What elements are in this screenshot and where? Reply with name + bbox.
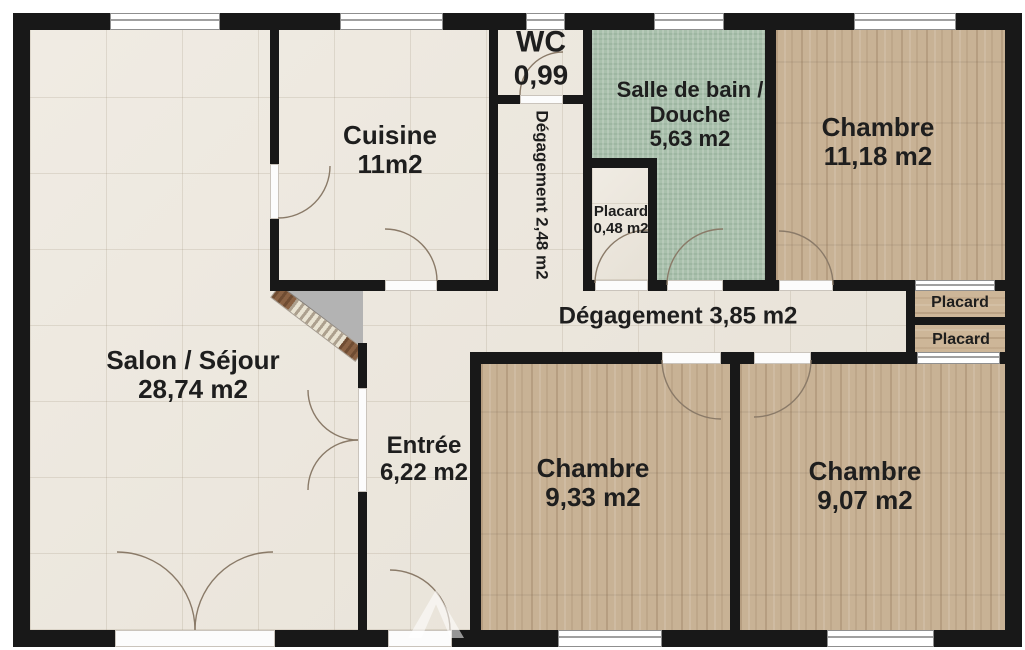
door-arc-sdb <box>667 229 723 285</box>
degagement-couloir-text: Dégagement 2,48 m2 <box>532 110 551 279</box>
door-arc-french-left <box>117 552 195 630</box>
salon-area: 28,74 m2 <box>106 375 279 404</box>
sdb-name-line1: Salle de bain / <box>617 78 764 103</box>
degagement-hall-text: Dégagement 3,85 m2 <box>559 304 798 331</box>
door-arc-chambre3 <box>754 360 811 417</box>
door-arc-cuisine-hall <box>385 229 437 281</box>
placard-haut-name: Placard <box>931 294 989 312</box>
chambre3-area: 9,07 m2 <box>809 486 922 515</box>
chambre1-area: 11,18 m2 <box>822 142 935 171</box>
entree-name: Entrée <box>380 433 468 460</box>
placard-sdb-area: 0,48 m2 <box>593 221 648 238</box>
label-placard-bas: Placard <box>932 331 990 349</box>
label-salle-de-bain: Salle de bain / Douche 5,63 m2 <box>617 78 764 152</box>
label-wc: WC 0,99 <box>514 26 569 91</box>
door-arc-placard-sdb <box>595 230 648 283</box>
sdb-area: 5,63 m2 <box>617 127 764 152</box>
placard-sdb-name: Placard <box>593 204 648 221</box>
chambre3-name: Chambre <box>809 457 922 486</box>
label-degagement-hall: Dégagement 3,85 m2 <box>559 304 798 331</box>
chambre2-name: Chambre <box>537 454 650 483</box>
label-entree: Entrée 6,22 m2 <box>380 433 468 487</box>
label-chambre-1: Chambre 11,18 m2 <box>822 113 935 171</box>
wc-area: 0,99 <box>514 59 569 90</box>
door-arc-chambre1 <box>779 231 833 285</box>
door-arc-chambre2 <box>662 360 721 419</box>
door-arc-entree-bottom <box>308 440 358 490</box>
label-degagement-couloir: Dégagement 2,48 m2 <box>532 110 551 279</box>
label-placard-sdb: Placard 0,48 m2 <box>593 204 648 238</box>
door-swing-arcs <box>0 0 1025 650</box>
door-arc-entree-top <box>308 390 358 440</box>
entree-area: 6,22 m2 <box>380 460 468 487</box>
floor-plan: Salon / Séjour 28,74 m2 Cuisine 11m2 WC … <box>0 0 1025 650</box>
cuisine-area: 11m2 <box>343 150 437 179</box>
sdb-name-line2: Douche <box>617 103 764 128</box>
placard-bas-name: Placard <box>932 331 990 349</box>
cuisine-name: Cuisine <box>343 121 437 150</box>
wc-name: WC <box>514 26 569 60</box>
label-chambre-3: Chambre 9,07 m2 <box>809 457 922 515</box>
salon-name: Salon / Séjour <box>106 346 279 375</box>
chambre2-area: 9,33 m2 <box>537 483 650 512</box>
label-placard-haut: Placard <box>931 294 989 312</box>
chambre1-name: Chambre <box>822 113 935 142</box>
label-cuisine: Cuisine 11m2 <box>343 121 437 179</box>
door-arc-french-right <box>195 552 273 630</box>
label-chambre-2: Chambre 9,33 m2 <box>537 454 650 512</box>
label-salon: Salon / Séjour 28,74 m2 <box>106 346 279 404</box>
door-arc-salon-cuisine <box>278 166 330 218</box>
